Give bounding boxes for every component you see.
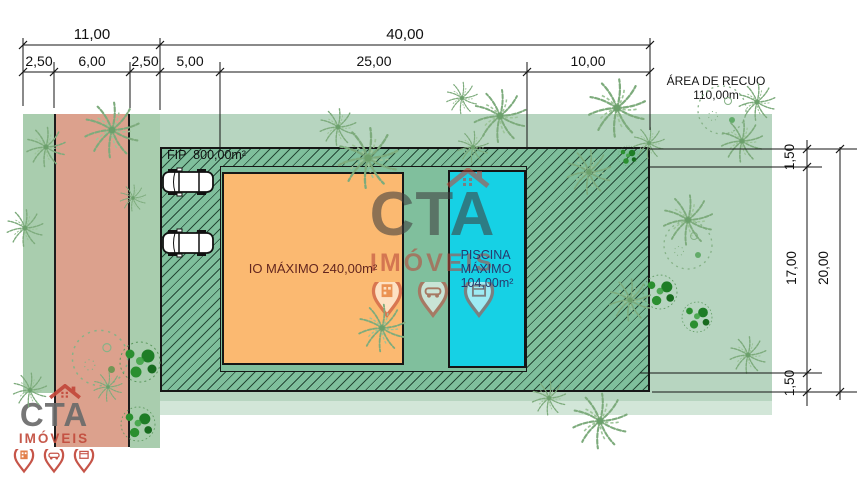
dim-label-11m: 11,00 xyxy=(74,26,110,43)
dim-label-20m: 20,00 xyxy=(816,251,831,285)
pool-label-layer: PISCINA MÁXIMO 104,00m² xyxy=(448,170,526,368)
pool-label-line1: PISCINA xyxy=(461,248,514,262)
palm-tree-icon xyxy=(447,82,478,113)
setback-area-label: ÁREA DE RECUO 110,00m xyxy=(653,75,779,102)
map-pin-shop-icon xyxy=(73,449,95,476)
dim-label-1-50-top: 1,50 xyxy=(782,144,797,170)
dim-label-2-50b: 2,50 xyxy=(131,53,158,69)
logo-bottom-left: CTA IMÓVEIS xyxy=(4,384,104,476)
pool-label-line3: 104,00m² xyxy=(461,276,514,290)
site-plan-canvas: CTA IMÓVEIS IO MÁXIMO 240,00m² PISCINA M… xyxy=(0,0,861,477)
dim-label-17m: 17,00 xyxy=(784,251,799,285)
map-pin-car-icon xyxy=(43,449,65,476)
map-pin-building-icon xyxy=(13,449,35,476)
terrain-light-strip xyxy=(160,401,772,415)
dim-label-6m: 6,00 xyxy=(78,53,105,69)
logo-subtitle: IMÓVEIS xyxy=(19,431,89,446)
logo-brand: CTA xyxy=(20,401,88,429)
house-area-label: IO MÁXIMO 240,00m² xyxy=(249,261,378,276)
dim-label-25m: 25,00 xyxy=(356,53,391,69)
setback-area-line1: ÁREA DE RECUO xyxy=(653,75,779,89)
dim-label-1-50-bottom: 1,50 xyxy=(782,370,797,396)
map-pin-car-icon xyxy=(416,282,450,322)
house-label-layer: IO MÁXIMO 240,00m² xyxy=(222,172,404,365)
dim-label-40m: 40,00 xyxy=(386,26,424,43)
dim-label-2-50a: 2,50 xyxy=(25,53,52,69)
sidewalk-left xyxy=(23,114,54,393)
dim-label-5m: 5,00 xyxy=(176,53,203,69)
sidewalk-right xyxy=(130,114,160,448)
fip-area-label: FIP 800,00m² xyxy=(167,148,246,162)
dim-label-10m: 10,00 xyxy=(570,53,605,69)
setback-area-line2: 110,00m xyxy=(653,89,779,103)
pool-label-line2: MÁXIMO xyxy=(461,262,514,276)
